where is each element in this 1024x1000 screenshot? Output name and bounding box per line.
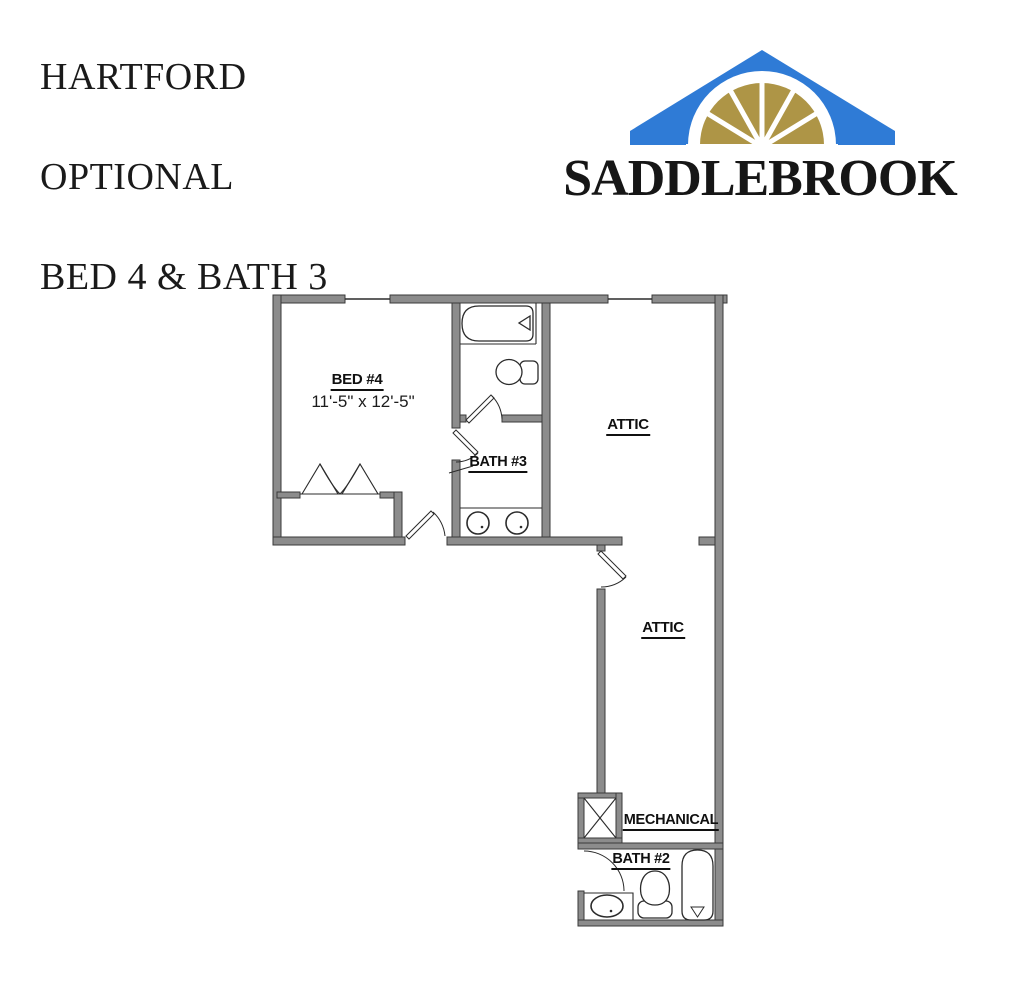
door-swing-icon xyxy=(466,395,494,423)
toilet-icon xyxy=(641,871,670,905)
room-label-bath2: BATH #2 xyxy=(611,851,670,870)
toilet-tank xyxy=(520,361,538,384)
room-label-bath3: BATH #3 xyxy=(468,454,527,473)
sink-icon xyxy=(467,512,489,534)
room-label-mechanical: MECHANICAL xyxy=(623,812,719,831)
toilet-icon xyxy=(496,360,522,385)
room-label-bed4: BED #4 xyxy=(331,371,384,391)
attic-door xyxy=(598,551,626,587)
door-swing-icon xyxy=(453,430,478,455)
room-label-attic-lower: ATTIC xyxy=(641,619,685,639)
mechanical-chase-icon xyxy=(584,798,616,838)
bed4-fixtures xyxy=(300,464,445,539)
sink-icon xyxy=(591,895,623,917)
door-swing-icon xyxy=(406,511,434,539)
bifold-closet-doors-icon xyxy=(302,464,378,494)
floor-plan: BED #4 11'-5" x 12'-5" BATH #3 ATTIC ATT… xyxy=(0,0,1024,1000)
sink-icon xyxy=(506,512,528,534)
room-label-attic-upper: ATTIC xyxy=(606,416,650,436)
door-swing-icon xyxy=(598,551,626,579)
room-dimensions-bed4: 11'-5" x 12'-5" xyxy=(311,392,414,412)
